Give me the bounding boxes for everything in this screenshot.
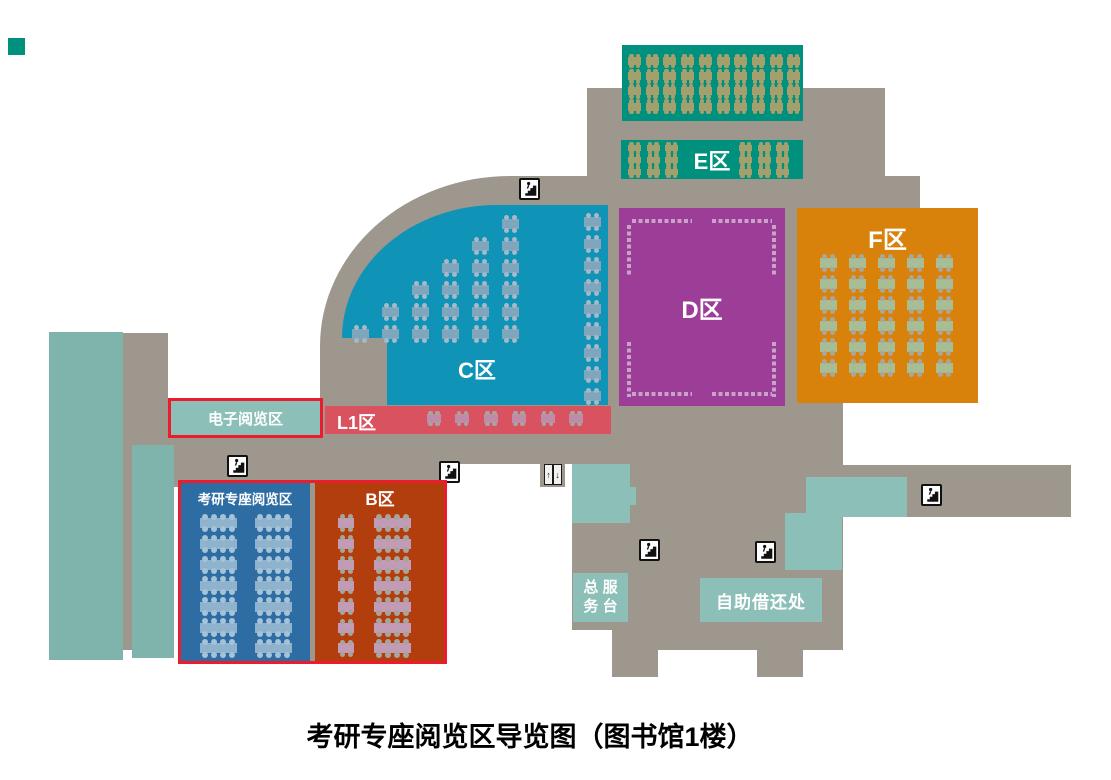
seat (880, 275, 885, 280)
seat (673, 153, 678, 158)
e-lower-right-table (776, 144, 789, 152)
seat (629, 84, 634, 89)
seat (938, 275, 943, 280)
seat (880, 330, 885, 335)
f-table (849, 362, 866, 374)
seat (830, 309, 835, 314)
seat (664, 79, 669, 84)
seat (706, 99, 711, 104)
seat (636, 153, 641, 158)
seat (822, 330, 827, 335)
stairs-icon (639, 539, 660, 561)
seat (689, 54, 694, 59)
seat (777, 142, 782, 147)
seat (586, 357, 591, 362)
seat (747, 174, 752, 179)
seat (830, 288, 835, 293)
seat (784, 142, 789, 147)
seat (777, 174, 782, 179)
seat (482, 338, 487, 343)
seat (586, 322, 591, 327)
seat (753, 79, 758, 84)
seat (765, 174, 770, 179)
seat (851, 267, 856, 272)
seat (888, 351, 893, 356)
seat (586, 213, 591, 218)
floor-foot-right (757, 650, 803, 677)
f-table (849, 299, 866, 311)
seat (777, 64, 782, 69)
seat (851, 254, 856, 259)
l1-table (512, 413, 526, 424)
seat (457, 411, 462, 416)
seat (859, 288, 864, 293)
seat (474, 272, 479, 277)
seat (414, 338, 419, 343)
seat (759, 54, 764, 59)
seat (474, 250, 479, 255)
f-table (820, 362, 837, 374)
f-table (849, 257, 866, 269)
seat (512, 294, 517, 299)
seat (888, 372, 893, 377)
c-stair-table (502, 262, 519, 274)
c-stair-table (502, 240, 519, 252)
seat (777, 54, 782, 59)
e-upper-table (787, 71, 800, 81)
seat (909, 317, 914, 322)
e-lower-left-table (665, 168, 678, 176)
seat (938, 338, 943, 343)
e-lower-left-table (665, 156, 678, 164)
service-area-shape-1 (572, 464, 630, 523)
c-right-table (584, 216, 601, 228)
seat (759, 174, 764, 179)
seat (759, 142, 764, 147)
f-table (878, 341, 895, 353)
stairs-icon (921, 484, 942, 506)
seat (512, 338, 517, 343)
e-upper-table (699, 56, 712, 66)
seat (586, 248, 591, 253)
seat (673, 165, 678, 170)
seat (452, 338, 457, 343)
seat (917, 288, 922, 293)
c-stair-table (442, 262, 459, 274)
seat (629, 165, 634, 170)
seat (654, 165, 659, 170)
seat (771, 99, 776, 104)
seat (629, 69, 634, 74)
seat (664, 99, 669, 104)
e-lower-right-table (758, 156, 771, 164)
seat (594, 279, 599, 284)
seat (636, 99, 641, 104)
e-lower-left-table (628, 156, 641, 164)
seat (706, 54, 711, 59)
seat (512, 228, 517, 233)
c-stair-table (472, 328, 489, 340)
seat (444, 259, 449, 264)
e-upper-table (663, 56, 676, 66)
seat (664, 110, 669, 115)
seat (880, 338, 885, 343)
e-upper-table (699, 86, 712, 96)
seat (938, 296, 943, 301)
seat (629, 64, 634, 69)
seat (664, 69, 669, 74)
seat (452, 316, 457, 321)
seat (830, 330, 835, 335)
seat (577, 411, 582, 416)
e-upper-table (646, 86, 659, 96)
bookshelf-dashes (632, 219, 692, 223)
floor-foot-left (612, 650, 658, 677)
seat (384, 338, 389, 343)
seat (512, 272, 517, 277)
seat (586, 400, 591, 405)
seat (784, 153, 789, 158)
seat (673, 142, 678, 147)
seat (594, 388, 599, 393)
seat (648, 165, 653, 170)
seat (636, 54, 641, 59)
seat (586, 344, 591, 349)
seat (504, 272, 509, 277)
seat (485, 411, 490, 416)
seat (586, 313, 591, 318)
seat (724, 64, 729, 69)
seat (414, 294, 419, 299)
e-lower-right-table (758, 144, 771, 152)
c-right-table (584, 369, 601, 381)
seat (777, 84, 782, 89)
e-lower-left-table (628, 144, 641, 152)
seat (788, 69, 793, 74)
seat (822, 254, 827, 259)
e-upper-table (663, 102, 676, 112)
kaoyan-highlight-outline (178, 480, 447, 664)
seat (938, 288, 943, 293)
seat (788, 110, 793, 115)
seat (784, 165, 789, 170)
e-lower-left-table (647, 168, 660, 176)
f-table (820, 278, 837, 290)
e-upper-table (734, 71, 747, 81)
seat (724, 54, 729, 59)
seat (647, 99, 652, 104)
f-table (849, 341, 866, 353)
seat (771, 54, 776, 59)
bookshelf-dashes (712, 219, 772, 223)
f-table (907, 299, 924, 311)
l1-table (455, 413, 469, 424)
seat (444, 281, 449, 286)
seat (504, 281, 509, 286)
seat (504, 294, 509, 299)
seat (747, 165, 752, 170)
seat (629, 174, 634, 179)
seat (946, 330, 951, 335)
e-upper-table (787, 102, 800, 112)
f-table (907, 257, 924, 269)
l1-table (541, 413, 555, 424)
e-upper-table (752, 56, 765, 66)
seat (917, 351, 922, 356)
c-stair-table (442, 306, 459, 318)
service-desk-label-line2: 务 台 (583, 598, 617, 617)
seat (586, 388, 591, 393)
seat (636, 174, 641, 179)
seat (706, 69, 711, 74)
seat (354, 325, 359, 330)
seat (909, 296, 914, 301)
seat (777, 165, 782, 170)
seat (909, 288, 914, 293)
zone-c-label: C区 (458, 353, 496, 385)
seat (946, 372, 951, 377)
e-upper-table (752, 86, 765, 96)
f-table (878, 362, 895, 374)
f-table (820, 299, 837, 311)
seat (851, 275, 856, 280)
e-upper-table (717, 86, 730, 96)
seat (647, 79, 652, 84)
e-lower-right-table (739, 168, 752, 176)
seat (735, 110, 740, 115)
f-table (936, 278, 953, 290)
c-stair-table (502, 218, 519, 230)
seat (747, 142, 752, 147)
seat (822, 309, 827, 314)
seat (851, 296, 856, 301)
seat (664, 54, 669, 59)
seat (859, 309, 864, 314)
e-upper-table (770, 71, 783, 81)
seat (671, 99, 676, 104)
seat (880, 296, 885, 301)
c-right-table (584, 238, 601, 250)
seat (504, 316, 509, 321)
e-lower-left-table (665, 144, 678, 152)
seat (822, 359, 827, 364)
seat (444, 316, 449, 321)
e-upper-table (681, 71, 694, 81)
seat (888, 267, 893, 272)
seat (938, 372, 943, 377)
seat (938, 330, 943, 335)
seat (636, 165, 641, 170)
seat (689, 110, 694, 115)
e-lower-right-table (776, 156, 789, 164)
seat (822, 275, 827, 280)
f-table (878, 320, 895, 332)
seat (682, 54, 687, 59)
seat (464, 411, 469, 416)
seat (682, 84, 687, 89)
left-wall-bar (49, 332, 123, 660)
f-table (820, 257, 837, 269)
seat (452, 272, 457, 277)
e-lower-right-table (739, 144, 752, 152)
seat (742, 79, 747, 84)
seat (653, 54, 658, 59)
seat (666, 165, 671, 170)
seat (771, 110, 776, 115)
seat (822, 338, 827, 343)
seat (946, 267, 951, 272)
seat (724, 69, 729, 74)
seat (666, 142, 671, 147)
seat (513, 411, 518, 416)
seat (917, 309, 922, 314)
stairs-icon (519, 178, 540, 200)
bookshelf-dashes (632, 392, 692, 396)
seat (777, 110, 782, 115)
seat (777, 99, 782, 104)
bookshelf-dashes (772, 342, 776, 397)
seat (482, 294, 487, 299)
seat (822, 267, 827, 272)
e-upper-table (717, 56, 730, 66)
service-area-shape-2 (785, 513, 842, 570)
left-wall-bar-inner (132, 445, 174, 658)
seat (946, 288, 951, 293)
seat (765, 142, 770, 147)
seat (654, 153, 659, 158)
seat (700, 99, 705, 104)
seat (777, 69, 782, 74)
seat (422, 294, 427, 299)
seat (718, 54, 723, 59)
seat (859, 267, 864, 272)
e-lower-right-table (739, 156, 752, 164)
seat (648, 174, 653, 179)
seat (512, 250, 517, 255)
zone-l1-label: L1区 (337, 409, 376, 435)
seat (474, 325, 479, 330)
seat (938, 309, 943, 314)
seat (474, 237, 479, 242)
seat (485, 422, 490, 427)
seat (909, 267, 914, 272)
seat (718, 99, 723, 104)
seat (474, 303, 479, 308)
e-lower-right-table (758, 168, 771, 176)
c-stair-table (382, 306, 399, 318)
f-table (936, 320, 953, 332)
bookshelf-dashes (772, 225, 776, 275)
seat (917, 372, 922, 377)
seat (740, 142, 745, 147)
seat (822, 372, 827, 377)
service-area-shape-3 (806, 477, 907, 517)
e-upper-table (646, 102, 659, 112)
c-right-table (584, 260, 601, 272)
seat (384, 316, 389, 321)
elevator-down-arrow: ↓ (553, 464, 562, 485)
e-upper-table (663, 86, 676, 96)
c-stair-table (442, 328, 459, 340)
f-table (907, 320, 924, 332)
service-area-shape-1-tab (630, 487, 636, 505)
seat (648, 142, 653, 147)
seat (474, 281, 479, 286)
seat (653, 110, 658, 115)
seat (851, 309, 856, 314)
seat (362, 338, 367, 343)
e-upper-table (770, 102, 783, 112)
seat (880, 254, 885, 259)
seat (435, 411, 440, 416)
seat (880, 309, 885, 314)
seat (917, 330, 922, 335)
seat (880, 267, 885, 272)
seat (673, 174, 678, 179)
e-lower-left-table (647, 156, 660, 164)
seat (586, 291, 591, 296)
service-desk-box: 总 服 务 台 (573, 573, 628, 622)
seat (629, 54, 634, 59)
seat (422, 316, 427, 321)
e-upper-table (699, 102, 712, 112)
seat (859, 372, 864, 377)
seat (682, 110, 687, 115)
f-table (907, 278, 924, 290)
floor-c-notch (330, 338, 387, 405)
c-stair-table (412, 306, 429, 318)
seat (909, 359, 914, 364)
seat (851, 372, 856, 377)
e-upper-table (787, 56, 800, 66)
stairs-icon (227, 455, 248, 477)
seat (938, 351, 943, 356)
seat (759, 165, 764, 170)
seat (504, 215, 509, 220)
seat (414, 281, 419, 286)
seat (629, 142, 634, 147)
e-upper-table (628, 71, 641, 81)
seat (689, 99, 694, 104)
c-stair-table (472, 306, 489, 318)
seat (788, 79, 793, 84)
seat (682, 99, 687, 104)
seat (759, 69, 764, 74)
f-table (907, 362, 924, 374)
e-upper-table (681, 102, 694, 112)
e-upper-table (717, 71, 730, 81)
seat (700, 79, 705, 84)
seat (909, 254, 914, 259)
f-table (936, 362, 953, 374)
seat (822, 288, 827, 293)
seat (482, 250, 487, 255)
e-upper-table (734, 56, 747, 66)
seat (851, 359, 856, 364)
seat (740, 174, 745, 179)
c-stair-table (412, 284, 429, 296)
floor-lower-band (168, 434, 843, 464)
zone-e-label: E区 (694, 144, 731, 176)
seat (718, 79, 723, 84)
e-upper-table (646, 56, 659, 66)
seat (909, 330, 914, 335)
e-upper-table (646, 71, 659, 81)
seat (851, 317, 856, 322)
seat (504, 250, 509, 255)
seat (689, 79, 694, 84)
c-stair-table (352, 328, 369, 340)
